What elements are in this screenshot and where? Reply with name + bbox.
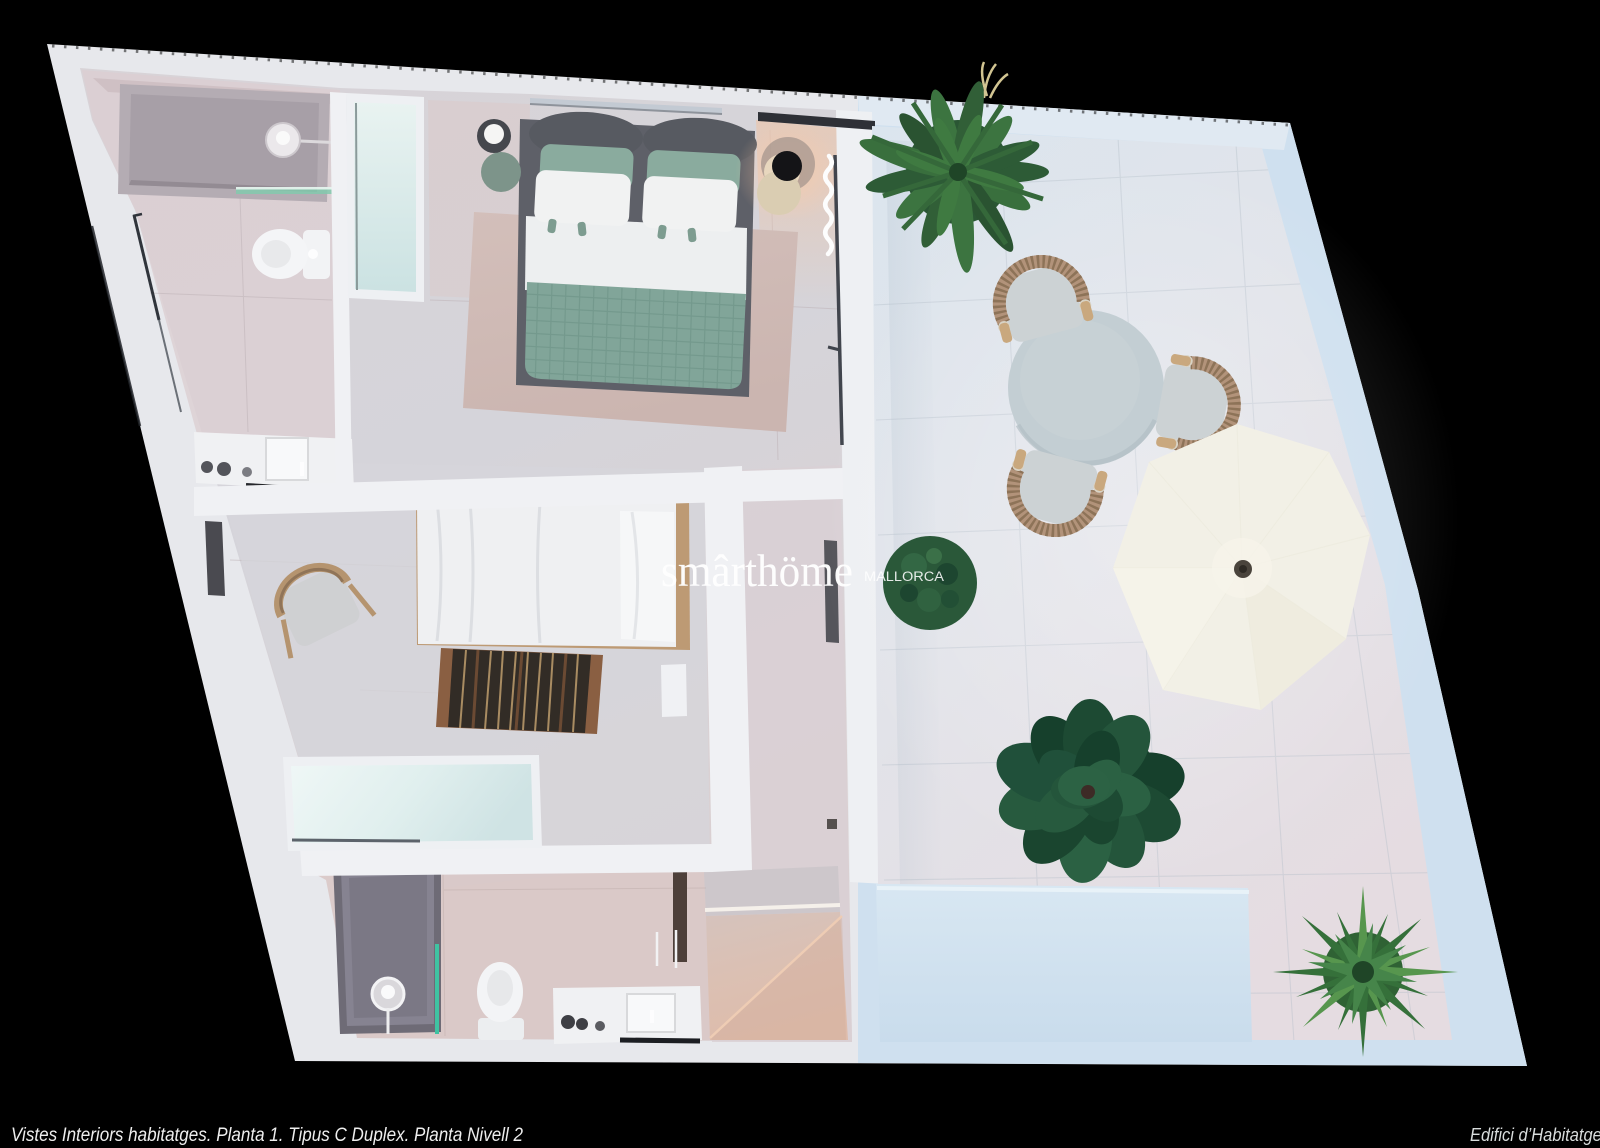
svg-text:Vistes Interiors habitatges. P: Vistes Interiors habitatges. Planta 1. T… (11, 1124, 523, 1146)
svg-text:MALLORCA: MALLORCA (864, 569, 944, 584)
svg-text:smârthöme: smârthöme (661, 545, 853, 596)
svg-text:Edifici d’Habitatges: Edifici d’Habitatges (1470, 1125, 1600, 1145)
